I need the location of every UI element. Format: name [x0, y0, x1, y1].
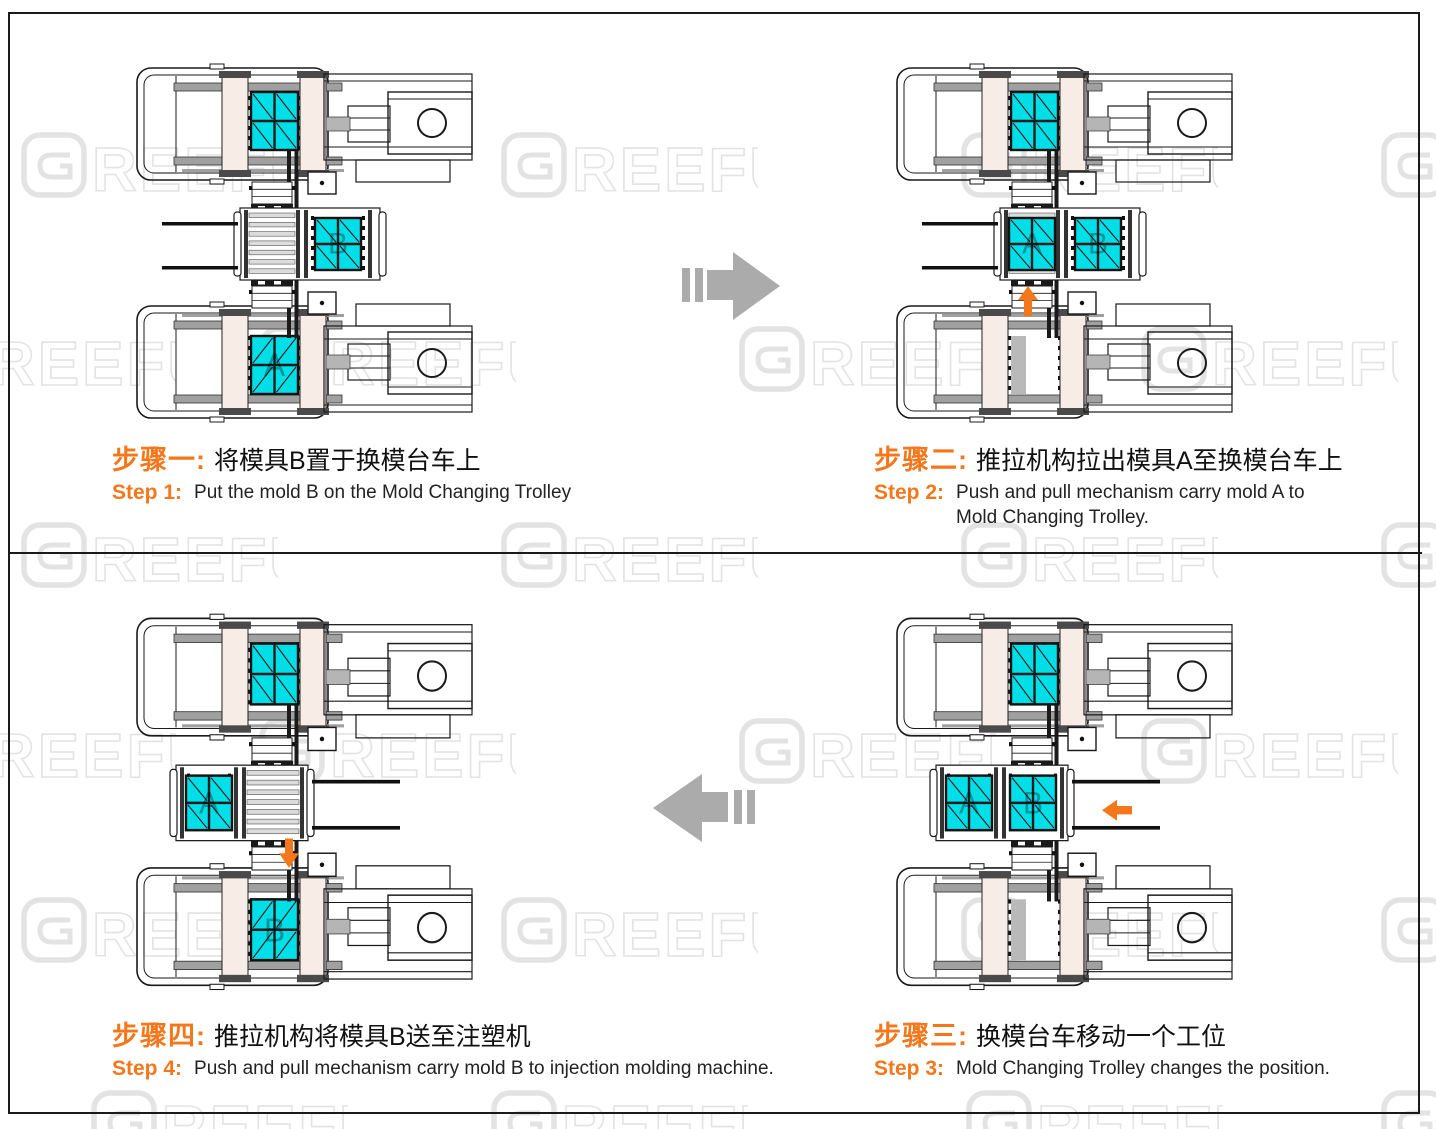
- step-4-diagram: BA: [118, 610, 538, 1000]
- step-1-en-title: Put the mold B on the Mold Changing Trol…: [194, 481, 571, 506]
- svg-text:B: B: [1088, 228, 1108, 261]
- step-1-zh-label: 步骤一:: [112, 438, 206, 477]
- svg-text:A: A: [264, 347, 286, 383]
- step-3-zh-title: 换模台车移动一个工位: [976, 1017, 1226, 1053]
- step-3-caption: 步骤三: 换模台车移动一个工位 Step 3: Mold Changing Tr…: [874, 1014, 1330, 1082]
- flow-arrow-left-icon: [650, 768, 760, 848]
- svg-text:A: A: [1022, 228, 1042, 261]
- step-2-zh-title: 推拉机构拉出模具A至换模台车上: [976, 441, 1343, 477]
- step-2-zh-label: 步骤二:: [874, 438, 968, 477]
- step-1-zh-title: 将模具B置于换模台车上: [214, 441, 481, 477]
- svg-text:B: B: [1023, 785, 1043, 821]
- step-3-en-title: Mold Changing Trolley changes the positi…: [956, 1057, 1330, 1082]
- step-1-en-label: Step 1:: [112, 481, 182, 506]
- step-1-diagram: AB: [118, 60, 538, 432]
- step-4-en-label: Step 4:: [112, 1057, 182, 1082]
- step-3-diagram: BA: [878, 610, 1298, 1000]
- step-4-zh-label: 步骤四:: [112, 1014, 206, 1053]
- svg-text:B: B: [328, 228, 348, 261]
- step-2-diagram: AB: [878, 60, 1298, 432]
- mold-change-process-diagram: REEFUREEFUREEFUREEFUREEFUREEFUREEFUREEFU…: [0, 0, 1436, 1129]
- step-2-en-title: Push and pull mechanism carry mold A toM…: [956, 481, 1305, 530]
- svg-text:B: B: [264, 911, 285, 949]
- svg-text:A: A: [199, 785, 219, 821]
- step-2-en-label: Step 2:: [874, 481, 944, 530]
- step-3-zh-label: 步骤三:: [874, 1014, 968, 1053]
- step-2-caption: 步骤二: 推拉机构拉出模具A至换模台车上 Step 2: Push and pu…: [874, 438, 1343, 530]
- step-1-caption: 步骤一: 将模具B置于换模台车上 Step 1: Put the mold B …: [112, 438, 571, 506]
- step-4-caption: 步骤四: 推拉机构将模具B送至注塑机 Step 4: Push and pull…: [112, 1014, 774, 1082]
- step-4-zh-title: 推拉机构将模具B送至注塑机: [214, 1017, 531, 1053]
- horizontal-divider: [8, 552, 1422, 554]
- svg-text:A: A: [959, 785, 979, 821]
- step-4-en-title: Push and pull mechanism carry mold B to …: [194, 1057, 774, 1082]
- flow-arrow-right-icon: [678, 246, 788, 326]
- step-3-en-label: Step 3:: [874, 1057, 944, 1082]
